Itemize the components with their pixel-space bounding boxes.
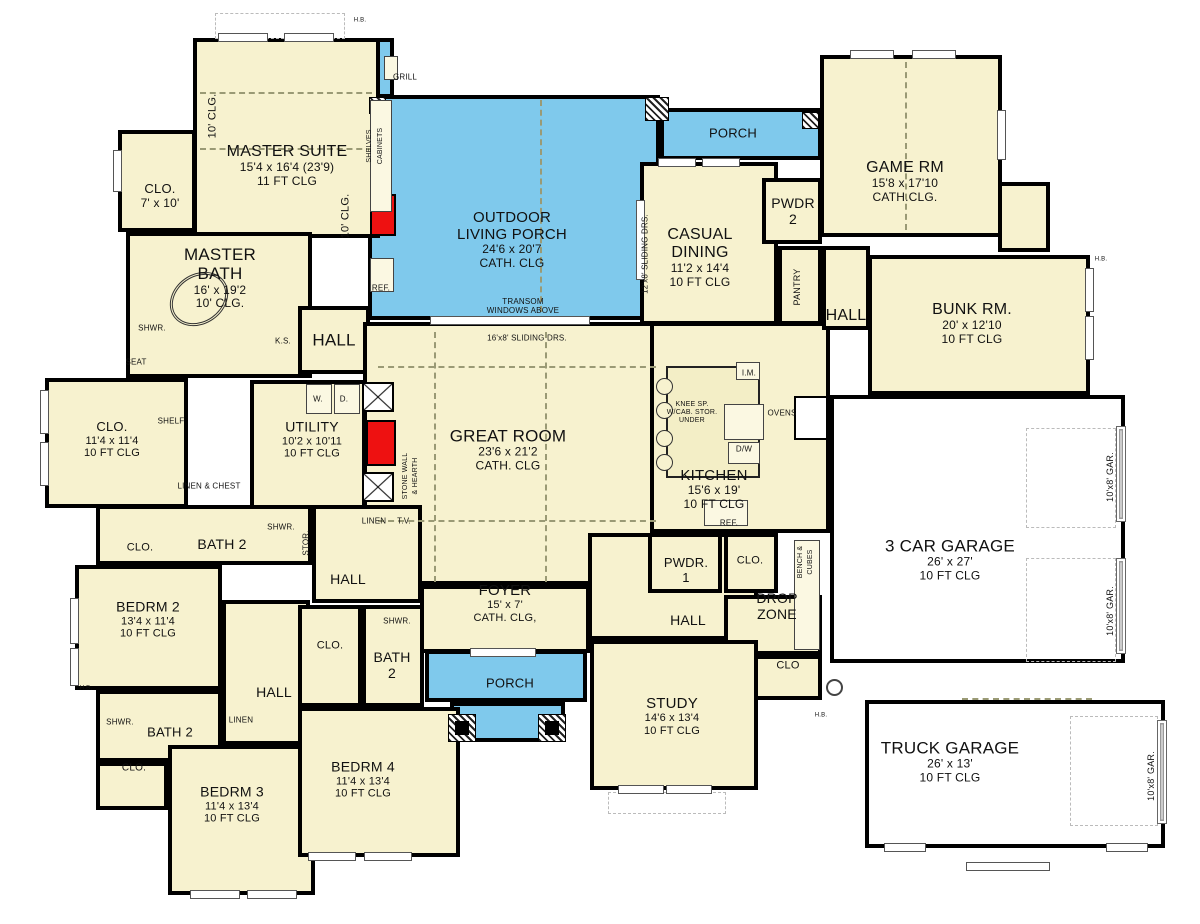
win-symbol [113,150,122,192]
win-symbol [884,843,926,852]
label-bedrm-2: BEDRM 213'4 x 11'410 FT CLG [116,599,180,640]
label-game-rm: GAME RM15'8 x 17'10CATH.CLG. [866,159,944,205]
win-symbol [40,442,49,486]
label-bath-bedrm4: BATH2 [373,650,410,682]
label-linen-chest: LINEN & CHEST [177,481,240,490]
dashh-symbol [962,698,1092,700]
room-game-rm [820,55,1002,237]
win-symbol [70,598,79,644]
ring-symbol [826,679,843,696]
win-symbol [430,316,590,325]
apron-symbol [608,792,726,814]
label-hb-3: H.B. [815,713,827,720]
label-ref-kitchen: REF. [720,518,738,527]
label-shwr-bath-bedrm4: SHWR. [383,616,411,625]
label-foyer: FOYER15' x 7'CATH. CLG, [474,582,537,624]
label-knee-sp: KNEE SP.W/CAB. STOR.UNDER [667,401,718,425]
label-ref-porch: REF. [372,283,390,292]
label-kitchen: KITCHEN15'6 x 19'10 FT CLG [680,467,747,511]
fire-symbol [366,420,396,466]
label-bench: BENCH & [797,546,805,579]
label-garage-3car: 3 CAR GARAGE26' x 27'10 FT CLG [885,537,1015,584]
label-master-bath: MASTERBATH16' x 19'210' CLG. [184,245,256,311]
label-clg-right: 10' CLG. [340,194,353,239]
win-symbol [966,862,1050,871]
label-hall-right: HALL [826,307,867,325]
room-bath2-top [96,505,312,565]
label-clo-master: CLO.7' x 10' [141,182,180,210]
floor-plan: MASTER SUITE15'4 x 16'4 (23'9)11 FT CLGC… [0,0,1200,924]
label-bedrm-4: BEDRM 411'4 x 13'410 FT CLG [331,759,395,800]
label-hall-master: HALL [312,330,355,349]
label-tv: T.V. [397,516,411,525]
label-shwr-bath2-top: SHWR. [267,522,295,531]
win-symbol [912,50,956,59]
label-shelf: SHELF [158,416,185,425]
label-truck-garage: TRUCK GARAGE26' x 13'10 FT CLG [881,739,1019,786]
label-shelves: SHELVES [366,129,374,162]
label-shwr-master: SHWR. [138,323,166,332]
label-bath2-top: BATH 2 [197,537,246,553]
label-porch-top: PORCH [709,127,757,142]
colS-symbol [645,97,669,121]
dashh-symbol [200,92,372,94]
win-symbol [1085,316,1094,360]
win-symbol [666,785,712,794]
label-cabinets: CABINETS [377,128,385,165]
label-utility: UTILITY10'2 x 10'1110 FT CLG [282,419,342,460]
win-symbol [308,852,356,861]
label-dishwasher: D/W [736,444,752,453]
label-washer: W. [313,394,323,403]
label-ovens: OVENS [767,408,796,417]
circ-symbol [656,430,673,447]
label-hb-1: H.B. [354,18,366,25]
label-hb-2: H.B. [1095,257,1107,264]
label-clo-pwdr: CLO. [737,555,763,568]
apron-symbol [1026,428,1116,528]
label-hearth: & HEARTH [412,458,420,495]
label-ks: K.S. [275,336,291,345]
apron-symbol [1026,558,1116,662]
win-symbol [284,33,334,42]
win-symbol [1106,843,1148,852]
colS-symbol [802,112,819,129]
oven-symbol [794,396,828,440]
win-symbol [218,33,268,42]
label-master-suite: MASTER SUITE15'4 x 16'4 (23'9)11 FT CLG [227,143,348,189]
win-symbol [702,158,740,167]
win-symbol [364,852,412,861]
gdoor-symbol [1157,720,1167,824]
label-linen-tv: LINEN [362,516,387,525]
label-sliding-12: 12'x8' SLIDING DRS. [640,214,649,294]
label-grill: GRILL [393,72,417,81]
apron-symbol [1070,716,1158,826]
gdoor-symbol [1116,558,1126,654]
win-symbol [850,50,894,59]
label-pwdr-2: PWDR2 [771,196,815,228]
label-outdoor-living-porch: OUTDOORLIVING PORCH24'6 x 20'7CATH. CLG [457,209,567,271]
label-clo-bedrm4: CLO. [317,640,343,653]
label-clo-drop: CLO [776,660,799,673]
label-pwdr-1: PWDR.1 [664,556,708,586]
dashh-symbol [378,520,656,522]
label-stor: STOR. [301,530,310,555]
label-clo-bath2-top: CLO. [127,542,153,555]
label-linen-hall2: LINEN [229,715,254,724]
col-symbol [448,714,476,742]
dashv-symbol [540,100,542,312]
label-bath2-bottom: BATH 2 [147,726,193,741]
win-symbol [247,890,297,899]
label-pantry: PANTRY [792,269,802,306]
dashv-symbol [434,332,436,582]
xbox-symbol [362,472,394,502]
circ-symbol [656,378,673,395]
room-nook-game [998,182,1050,252]
win-symbol [658,158,696,167]
win-symbol [997,110,1006,160]
label-sliding-16: 16'x8' SLIDING DRS. [487,333,567,342]
label-clo-11x11: CLO.11'4 x 11'410 FT CLG [84,420,140,460]
win-symbol [190,890,240,899]
label-stone-wall: STONE WALL [402,453,410,500]
label-hb-4: H.B. [80,686,92,693]
label-bunk-rm: BUNK RM.20' x 12'1010 FT CLG [932,301,1012,347]
win-symbol [70,648,79,686]
label-porch-bottom: PORCH [486,677,534,692]
gdoor-symbol [1116,426,1126,522]
label-hall-2: HALL [256,685,292,701]
label-dryer: D. [340,394,348,403]
label-gar-door-1: 10'x8' GAR. [1105,452,1115,502]
circ-symbol [656,454,673,471]
dashh-symbol [378,366,656,368]
label-study: STUDY14'6 x 13'410 FT CLG [644,695,700,737]
label-drop-zone: DROPZONE [756,591,797,623]
col-symbol [538,714,566,742]
win-symbol [1085,268,1094,312]
label-hall-study: HALL [670,613,706,629]
label-casual-dining: CASUALDINING11'2 x 14'410 FT CLG [667,226,732,290]
label-transom: TRANSOMWINDOWS ABOVE [487,297,559,315]
label-gar-door-2: 10'x8' GAR. [1105,586,1115,636]
room-clo-bedrm4 [298,605,362,707]
win-symbol [40,390,49,434]
label-clg-left: 10' CLG. [207,94,220,139]
win-symbol [618,785,664,794]
room-outdoor-living-porch [368,95,660,320]
label-clo-bottom: CLO. [122,762,146,773]
dashv-symbol [905,62,907,230]
label-bedrm-3: BEDRM 311'4 x 13'410 FT CLG [200,784,264,825]
label-shwr-bath2-bottom: SHWR. [106,717,134,726]
label-ice-maker: I.M. [742,368,756,377]
win-symbol [470,648,536,657]
label-great-room: GREAT ROOM23'6 x 21'2CATH. CLG [450,427,567,474]
xbox-symbol [362,382,394,412]
label-hall-1: HALL [330,572,366,588]
label-gar-door-truck: 10'x8' GAR. [1146,751,1156,801]
label-cubes: CUBES [807,549,815,574]
box-symbol [724,404,764,440]
label-seat: SEAT [125,357,146,366]
